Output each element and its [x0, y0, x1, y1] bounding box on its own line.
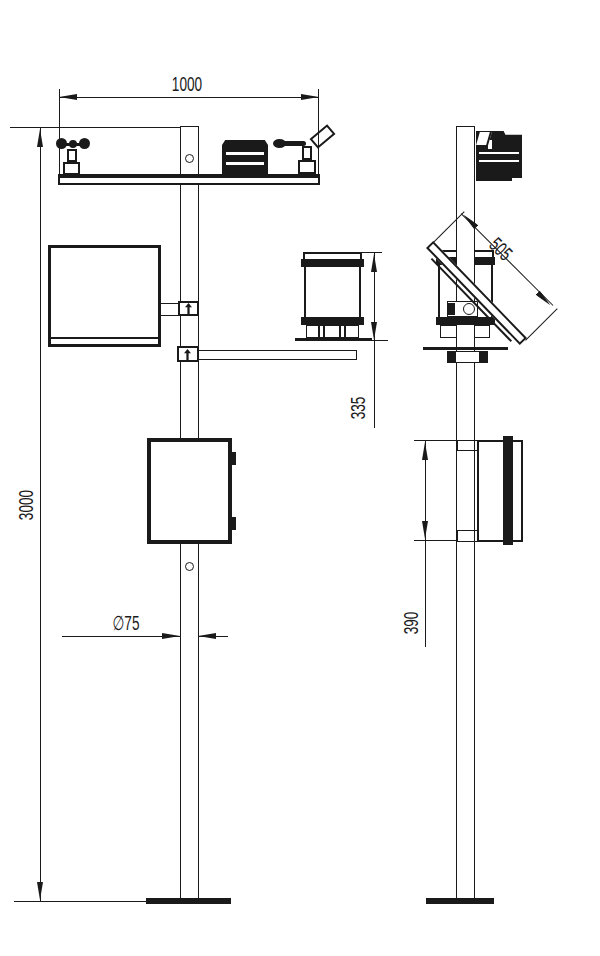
solar-panel-frame-line: [51, 337, 158, 339]
dim-1000-line: [59, 97, 319, 98]
rain-gauge-foot-line: [323, 325, 325, 338]
enclosure-hinge: [231, 452, 236, 465]
enclosure-front: [147, 438, 232, 544]
dim-505-arrow-bottom: [536, 291, 553, 308]
dim-3000-ext-bottom: [14, 901, 147, 902]
technical-drawing: 3000 1000: [0, 0, 600, 956]
dim-390-line: [425, 441, 426, 647]
dim-390-ext-bottom: [414, 540, 457, 541]
gauge-arm: [198, 350, 357, 360]
sensor-cluster-slit: [479, 160, 519, 162]
wind-vane-stem: [302, 146, 312, 160]
base-plate-front: [146, 898, 231, 904]
panel-clamp-bolt-circle: [463, 303, 475, 315]
dim-1000-ext-left: [59, 89, 60, 175]
wind-vane-base: [298, 160, 316, 174]
enclosure-bracket: [457, 530, 478, 542]
dim-3000-line: [40, 128, 41, 901]
enclosure-door-edge: [503, 436, 513, 545]
pole-hole-bottom: [185, 562, 194, 571]
anemometer-cup-left: [56, 138, 67, 149]
enclosure-side: [477, 440, 523, 542]
dim-75-arrow-right: [162, 633, 180, 639]
crossarm: [58, 174, 320, 185]
wind-vane-fin: [310, 124, 336, 149]
sensor-cluster-slit: [479, 152, 519, 154]
dim-335-line: [374, 253, 375, 428]
dim-1000-arrow-right: [301, 94, 319, 100]
rain-gauge-band-bottom: [301, 317, 364, 325]
dim-3000-arrow-down: [37, 882, 43, 900]
gauge-arm-clamp-block: [448, 352, 456, 362]
dim-390-ext-top: [414, 440, 457, 441]
anemometer-cup-right: [79, 138, 90, 149]
rain-gauge-foot-line: [339, 325, 341, 338]
dim-75-arrow-left: [198, 633, 216, 639]
dim-3000-arrow-up: [37, 129, 43, 147]
anemometer-stem: [67, 149, 77, 162]
enclosure-bracket: [457, 440, 478, 451]
gauge-arm-clamp-block: [479, 352, 487, 362]
radiation-shield-slit: [226, 162, 264, 165]
rain-gauge-rim: [303, 252, 362, 254]
rain-gauge-band-bottom: [457, 317, 475, 325]
crossarm-end: [476, 178, 512, 181]
base-plate-side: [426, 898, 494, 904]
gauge-arm-plate-side: [423, 347, 508, 350]
dim-335-arrow-up: [371, 254, 377, 272]
rain-gauge-plate: [295, 338, 372, 341]
wind-vane-counterweight: [273, 139, 286, 148]
rain-gauge-band-top: [301, 259, 364, 267]
dim-390-arrow-down: [422, 521, 428, 539]
enclosure-hinge: [231, 517, 236, 530]
dim-335-ext-top: [362, 252, 382, 253]
rain-gauge-wall: [359, 267, 361, 318]
rain-gauge-wall: [438, 265, 440, 317]
rain-gauge-feet: [306, 325, 359, 338]
anemometer-hub: [69, 140, 77, 148]
solar-panel-front: [48, 245, 161, 347]
rain-gauge-foot-line: [318, 325, 320, 338]
anemometer-base: [63, 162, 80, 175]
radiation-shield-slit: [226, 152, 264, 155]
dim-3000-ext-top: [10, 127, 180, 128]
panel-clamp-block: [448, 303, 455, 315]
pole-hole-top: [185, 154, 194, 163]
dim-1000-arrow-left: [59, 94, 77, 100]
rain-gauge-foot-line: [344, 325, 346, 338]
mast-pole-side: [456, 126, 475, 899]
dim-505-ext-bottom: [525, 308, 558, 341]
rain-gauge-wall: [304, 267, 306, 318]
dim-390-arrow-up: [422, 442, 428, 460]
radiation-shield-body: [222, 140, 268, 175]
